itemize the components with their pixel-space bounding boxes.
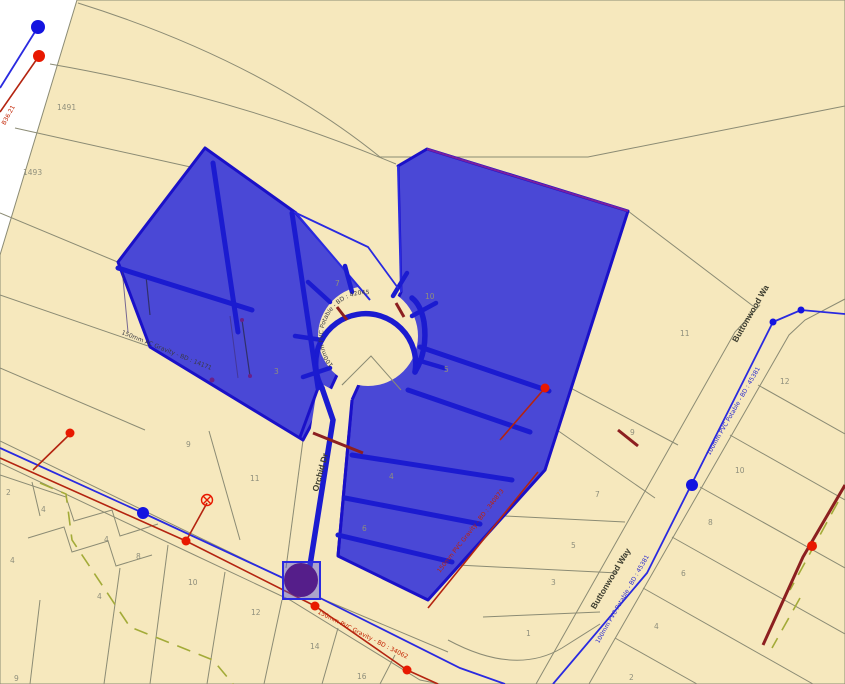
parcel-label: 9: [186, 440, 191, 449]
parcel-label: 9: [630, 428, 635, 437]
parcel-label: 10: [425, 292, 435, 301]
lateral-node: [240, 318, 244, 322]
water-node[interactable]: [137, 507, 149, 519]
sewer-manhole[interactable]: [311, 602, 320, 611]
parcel-label: 1: [526, 629, 531, 638]
parcel-label: 10: [735, 466, 745, 475]
parcel-label: 4: [104, 535, 109, 544]
parcel-label: 1493: [23, 168, 42, 177]
parcel-label: 16: [357, 672, 367, 681]
selected-junction-node[interactable]: [284, 563, 318, 597]
sewer-manhole[interactable]: [541, 384, 550, 393]
parcel-label: 5: [571, 541, 576, 550]
sewer-manhole[interactable]: [403, 666, 412, 675]
water-node[interactable]: [31, 20, 45, 34]
parcel-label: 4: [389, 472, 394, 481]
parcel-label: 4: [10, 556, 15, 565]
parcel-label: 9: [14, 674, 19, 683]
parcel-label: 11: [680, 329, 690, 338]
parcel-label: 8: [708, 518, 713, 527]
cul-de-sac-road: [318, 286, 418, 386]
lateral-node: [248, 374, 252, 378]
sewer-manhole[interactable]: [66, 429, 75, 438]
sewer-manhole[interactable]: [182, 537, 191, 546]
parcel-label: 4: [97, 592, 102, 601]
parcel-label: 2: [629, 673, 634, 682]
parcel-label: 3: [551, 578, 556, 587]
parcel-label: 10: [188, 578, 198, 587]
selected-node-marker[interactable]: [283, 562, 320, 599]
parcel-label: 7: [595, 490, 600, 499]
parcel-label: 2: [6, 488, 11, 497]
parcel-label: 12: [780, 377, 790, 386]
sewer-manhole[interactable]: [807, 541, 817, 551]
map-canvas[interactable]: Orchid Dr Buttonwood Way Buttonwood Wa 1…: [0, 0, 845, 684]
parcel-label: 8: [136, 552, 141, 561]
water-vertex[interactable]: [770, 319, 777, 326]
parcel-label: 1491: [57, 103, 76, 112]
lateral-node: [210, 378, 215, 383]
parcel-label: 3: [274, 367, 279, 376]
parcel-label: 6: [681, 569, 686, 578]
map-viewport[interactable]: Orchid Dr Buttonwood Way Buttonwood Wa 1…: [0, 0, 845, 684]
water-node[interactable]: [686, 479, 698, 491]
parcel-label: 4: [41, 505, 46, 514]
parcel-label: 7: [335, 279, 340, 288]
parcel-label: 11: [250, 474, 260, 483]
parcel-label: 6: [362, 524, 367, 533]
parcel-label: 12: [251, 608, 261, 617]
parcel-label: 4: [654, 622, 659, 631]
parcel-label: 14: [310, 642, 320, 651]
water-vertex[interactable]: [798, 307, 805, 314]
parcel-label: 5: [444, 365, 449, 374]
sewer-manhole[interactable]: [33, 50, 45, 62]
